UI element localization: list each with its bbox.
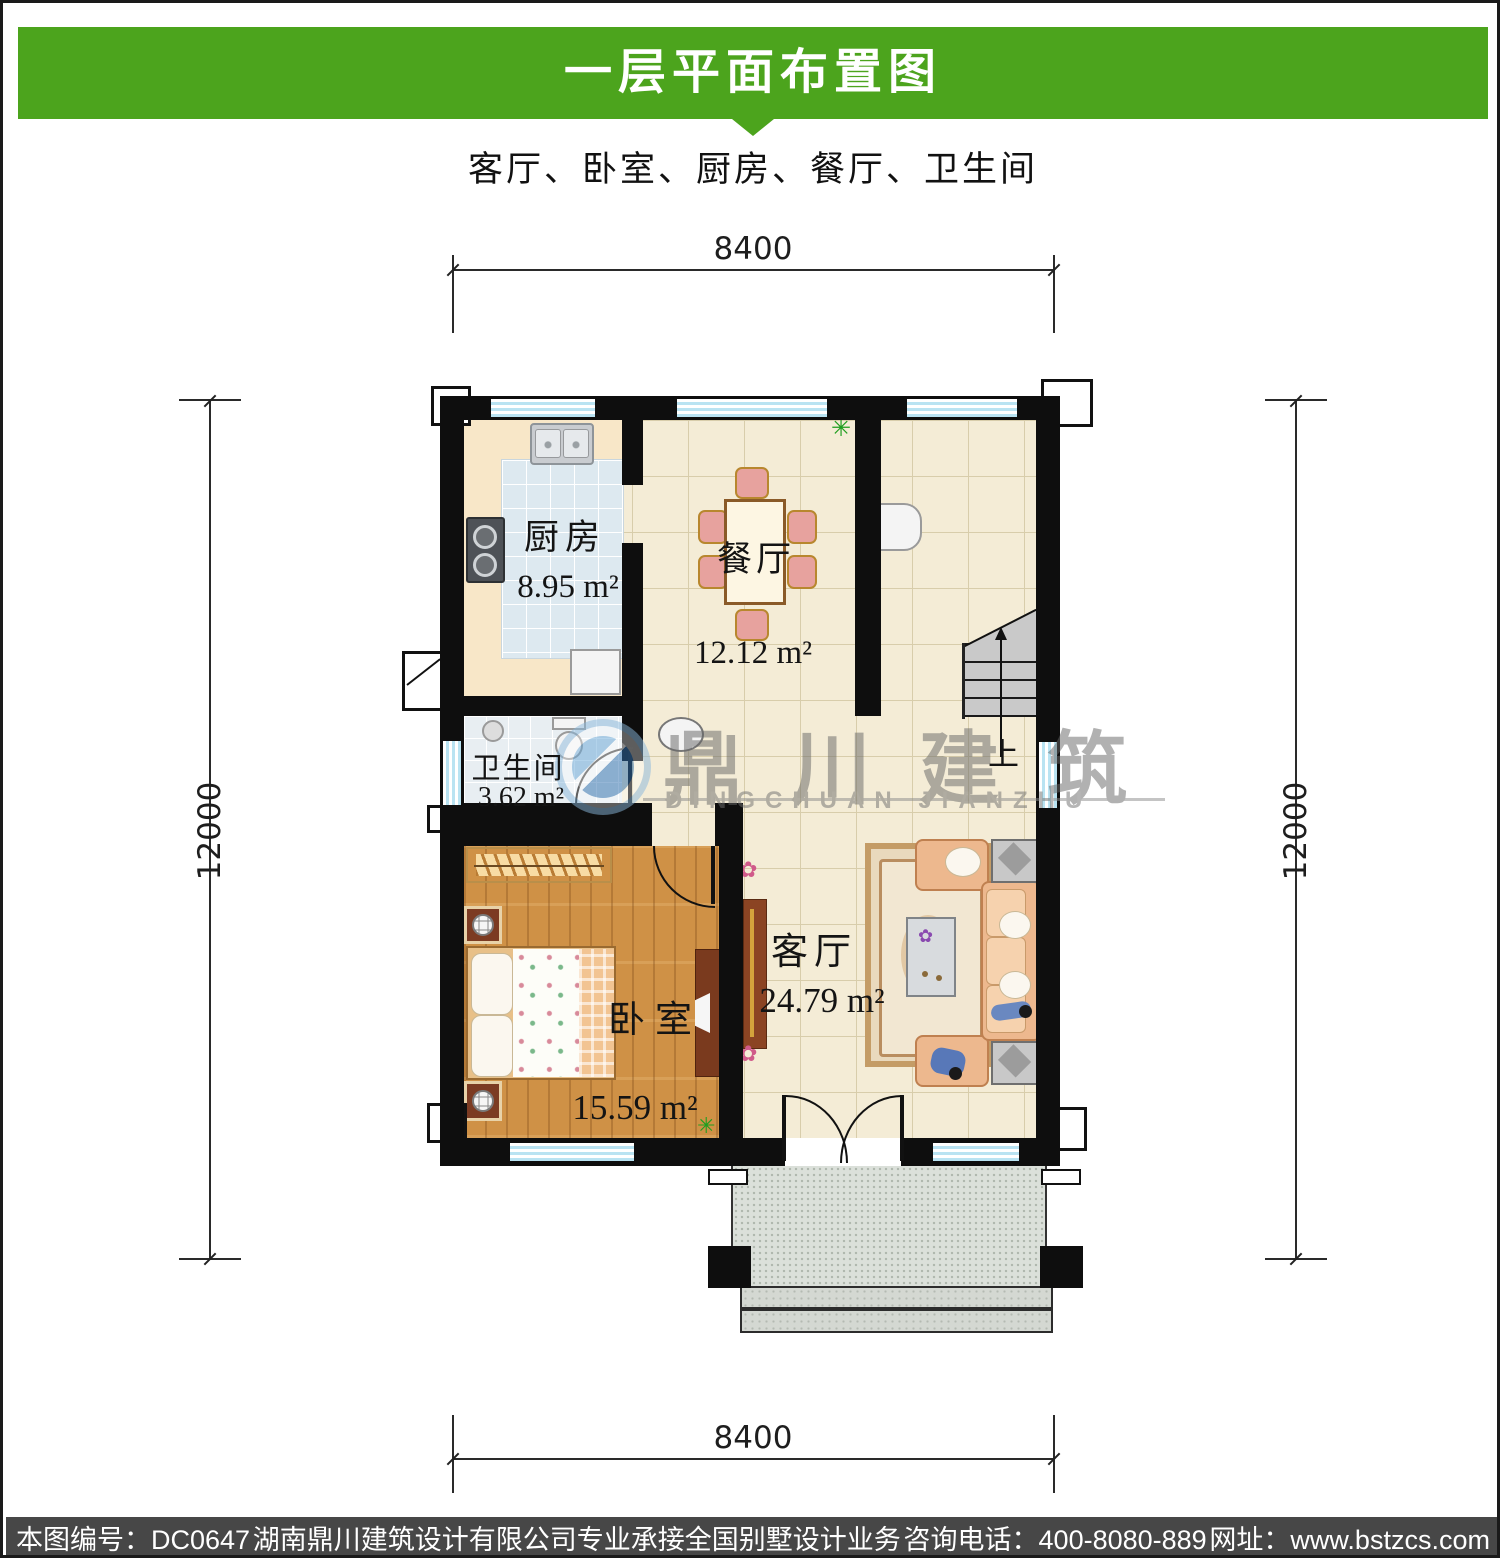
sink-basin-right xyxy=(563,429,589,458)
plant-icon: ✳ xyxy=(831,417,851,441)
floor-plan-sheet: 一层平面布置图 客厅、卧室、厨房、餐厅、卫生间 ✳ xyxy=(0,0,1500,1558)
wall-kitchen xyxy=(622,543,643,696)
dim-bottom-value: 8400 xyxy=(653,1420,853,1456)
company-line: 湖南鼎川建筑设计有限公司专业承接全国别墅设计业务 xyxy=(253,1518,901,1557)
throw-pillow xyxy=(945,847,981,877)
lamp-icon xyxy=(472,1090,494,1112)
dim-extension xyxy=(452,1415,454,1493)
throw-pillow xyxy=(999,971,1031,999)
window xyxy=(905,399,1019,417)
title-banner: 一层平面布置图 xyxy=(18,27,1488,119)
stairs-up-label: 上 xyxy=(988,729,1018,774)
wall-bedroom-living xyxy=(719,846,743,1138)
kitchen-label: 厨房 xyxy=(503,509,627,560)
flower-icon: ✿ xyxy=(918,927,933,945)
table-dot xyxy=(936,975,942,981)
kitchen-sink xyxy=(530,423,594,465)
throw-pillow xyxy=(999,911,1031,939)
kitchen-counter-appliance xyxy=(570,649,621,695)
kitchen-area: 8.95 m² xyxy=(506,569,630,606)
dim-line-top xyxy=(453,269,1054,271)
room-list-subtitle: 客厅、卧室、厨房、餐厅、卫生间 xyxy=(3,141,1500,192)
living-label: 客厅 xyxy=(752,921,876,975)
porch-column-right xyxy=(1040,1246,1083,1288)
entry-porch xyxy=(731,1166,1047,1286)
dining-chair xyxy=(735,467,769,499)
watermark-en: DINGCHUAN JIANZHU xyxy=(665,787,1092,815)
porch-column-left xyxy=(708,1246,751,1288)
bed-pillow xyxy=(471,953,513,1015)
sink-basin-left xyxy=(535,429,561,458)
porch-step-1 xyxy=(740,1286,1053,1309)
dim-line-bottom xyxy=(453,1458,1054,1460)
dim-top-value: 8400 xyxy=(653,231,853,267)
wall-dining-hall xyxy=(855,396,881,716)
dining-label: 餐厅 xyxy=(694,531,818,582)
table-dot xyxy=(922,971,928,977)
stair-arrow-icon xyxy=(995,627,1007,640)
bedroom-label: 卧室 xyxy=(593,989,717,1043)
wall-kitchen xyxy=(622,420,643,485)
page-title: 一层平面布置图 xyxy=(18,27,1488,119)
bed-sheet xyxy=(513,949,579,1077)
porch-post-right xyxy=(1041,1169,1081,1185)
side-table xyxy=(991,839,1041,883)
dim-right-value: 12000 xyxy=(1278,771,1314,891)
porch-step-2 xyxy=(740,1309,1053,1333)
person-head xyxy=(1019,1005,1032,1018)
dim-extension xyxy=(1053,1415,1055,1493)
bed-pillow xyxy=(471,1015,513,1077)
armchair xyxy=(915,839,989,891)
window xyxy=(508,1143,636,1161)
lamp-icon xyxy=(472,914,494,936)
banner-pointer-icon xyxy=(732,119,774,136)
drawing-number: 本图编号：DC0647 xyxy=(16,1518,250,1557)
bathroom-area: 3.62 m² xyxy=(459,782,583,814)
nightstand xyxy=(464,1081,502,1121)
phone-line: 咨询电话：400-8080-889 xyxy=(904,1518,1207,1557)
website-line: 网址：www.bstzcs.com xyxy=(1209,1518,1490,1557)
coffee-table: ✿ xyxy=(906,917,956,997)
water-heater xyxy=(879,503,922,551)
window xyxy=(489,399,597,417)
stove-burner-icon xyxy=(473,525,497,549)
nightstand xyxy=(464,906,502,944)
living-area: 24.79 m² xyxy=(750,981,894,1021)
kitchen-stove xyxy=(466,517,505,583)
dining-area: 12.12 m² xyxy=(681,635,825,672)
footer-bar: 本图编号：DC0647 湖南鼎川建筑设计有限公司专业承接全国别墅设计业务 咨询电… xyxy=(6,1517,1500,1558)
bedroom-area: 15.59 m² xyxy=(563,1088,707,1128)
shower-head xyxy=(482,720,504,742)
wardrobe-rod xyxy=(474,865,604,867)
bathroom-label: 卫生间 xyxy=(456,745,580,787)
stove-burner-icon xyxy=(473,553,497,577)
flue-diagonal xyxy=(406,658,440,685)
wardrobe xyxy=(466,847,612,883)
dim-left-value: 12000 xyxy=(192,771,228,891)
watermark: 鼎川建筑 DINGCHUAN JIANZHU xyxy=(543,693,1183,823)
side-table xyxy=(991,1041,1041,1085)
window xyxy=(675,399,829,417)
person-head xyxy=(949,1067,962,1080)
porch-post-left xyxy=(708,1169,748,1185)
window xyxy=(931,1143,1021,1161)
